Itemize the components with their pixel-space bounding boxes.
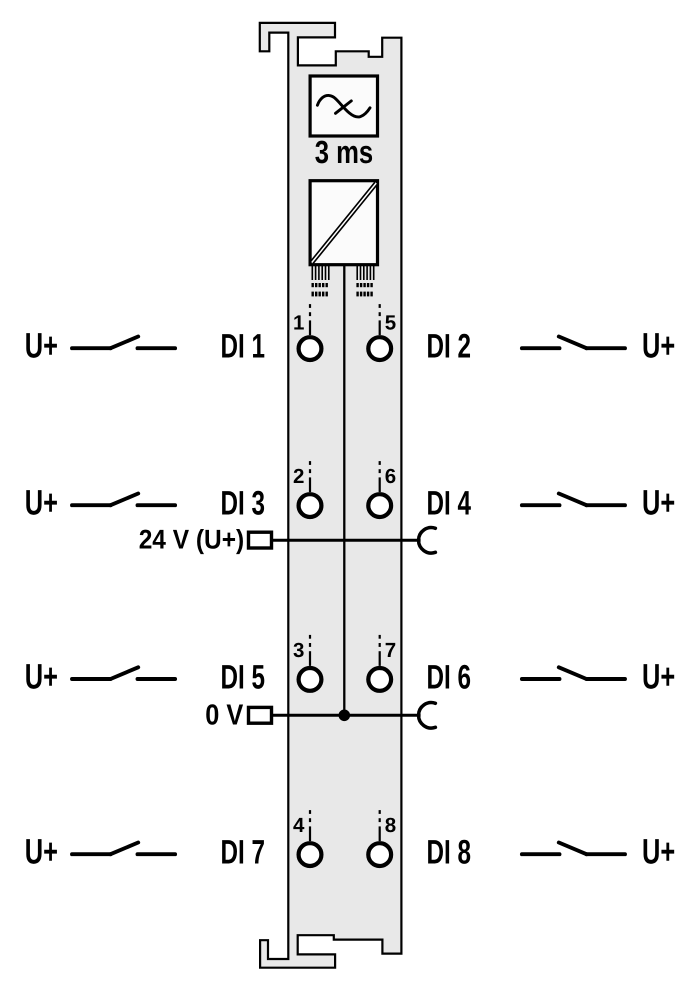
svg-text:1: 1	[293, 311, 304, 334]
svg-text:DI 4: DI 4	[427, 485, 472, 523]
svg-text:3: 3	[293, 639, 304, 662]
svg-text:3 ms: 3 ms	[315, 134, 374, 170]
svg-text:DI 5: DI 5	[221, 658, 266, 696]
svg-text:U+: U+	[642, 656, 675, 696]
svg-text:5: 5	[385, 311, 396, 334]
svg-text:6: 6	[385, 465, 396, 488]
svg-text:DI 1: DI 1	[221, 328, 266, 366]
svg-text:U+: U+	[642, 326, 675, 366]
svg-text:2: 2	[293, 465, 304, 488]
svg-text:24 V (U+): 24 V (U+)	[139, 524, 245, 554]
svg-text:4: 4	[293, 814, 305, 837]
svg-text:DI 8: DI 8	[427, 834, 472, 872]
svg-text:U+: U+	[642, 832, 675, 872]
svg-text:U+: U+	[25, 483, 58, 523]
svg-text:DI 2: DI 2	[427, 328, 472, 366]
svg-text:DI 3: DI 3	[221, 485, 266, 523]
svg-text:U+: U+	[25, 832, 58, 872]
svg-text:U+: U+	[25, 326, 58, 366]
svg-text:U+: U+	[642, 483, 675, 523]
svg-text:0 V: 0 V	[205, 700, 244, 732]
svg-text:DI 7: DI 7	[221, 834, 266, 872]
svg-text:U+: U+	[25, 656, 58, 696]
svg-text:7: 7	[385, 639, 396, 662]
svg-text:8: 8	[385, 814, 396, 837]
svg-text:DI 6: DI 6	[427, 658, 472, 696]
